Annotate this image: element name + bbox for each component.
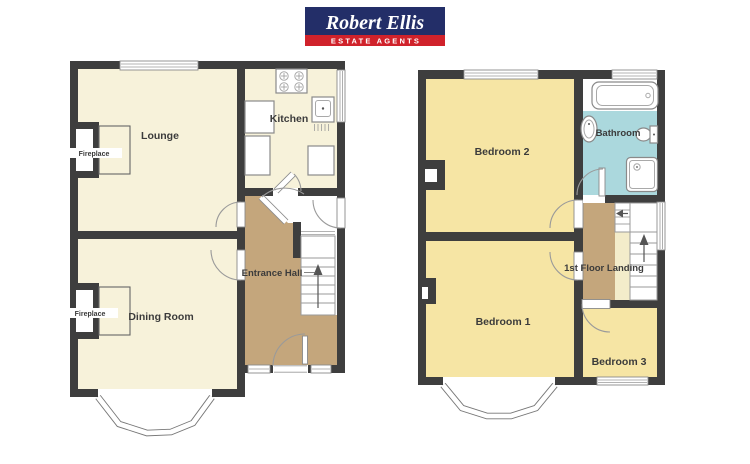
wall [331,365,345,373]
wall [574,280,583,385]
ground-floor-plan: Fireplace Fireplace Lounge Kitchen Dinin… [62,61,345,433]
brand-tagline: ESTATE AGENTS [331,37,421,46]
bathtub-icon [592,82,658,109]
window [612,70,657,79]
wall [418,377,443,385]
window [464,70,538,79]
wall [426,232,583,241]
wall [70,61,78,397]
wall [237,280,245,397]
kitchen-counter [308,146,334,175]
window [337,70,345,122]
wall [605,195,657,203]
shower-icon [627,158,658,192]
stove-icon [276,69,307,93]
floorplan-canvas: Robert Ellis ESTATE AGENTS [0,0,750,464]
wall [270,365,273,373]
brand-name: Robert Ellis [325,12,425,34]
window [248,365,270,373]
kitchen-label: Kitchen [270,113,309,125]
fireplace-label: Fireplace [79,151,110,158]
floorplan-page: Robert Ellis ESTATE AGENTS [0,0,750,464]
landing-room [583,203,615,300]
chimney-breast [418,160,445,190]
bay-window [443,377,555,416]
wall [298,188,337,196]
wall [574,228,583,252]
kitchen-counter [245,136,270,175]
wall [70,61,345,69]
staircase [301,232,335,316]
window [597,377,648,385]
wall [308,365,311,373]
bedroom1-label: Bedroom 1 [476,316,531,328]
wall [610,300,657,308]
bedroom2-label: Bedroom 2 [475,146,530,158]
window [120,61,198,70]
bathroom-label: Bathroom [596,128,641,139]
brand-logo: Robert Ellis ESTATE AGENTS [305,7,445,46]
chimney-breast [418,278,436,304]
bedroom3-label: Bedroom 3 [592,356,647,368]
landing-label: 1st Floor Landing [564,263,644,274]
wall [418,70,426,385]
lounge-label: Lounge [141,130,179,142]
fireplace-label: Fireplace [75,311,106,318]
wall [78,231,237,239]
wall [237,227,245,250]
wall [574,79,583,200]
first-floor-plan: Bedroom 2 Bedroom 1 Bedroom 3 Bathroom 1… [418,70,665,416]
wall [648,377,665,385]
entrance-hall-label: Entrance Hall [242,268,303,279]
window [657,202,665,250]
wall [237,61,245,202]
window [311,365,331,373]
wall [293,222,301,258]
dining-room-label: Dining Room [128,311,193,323]
wall [70,389,98,397]
bay-window [98,389,212,433]
